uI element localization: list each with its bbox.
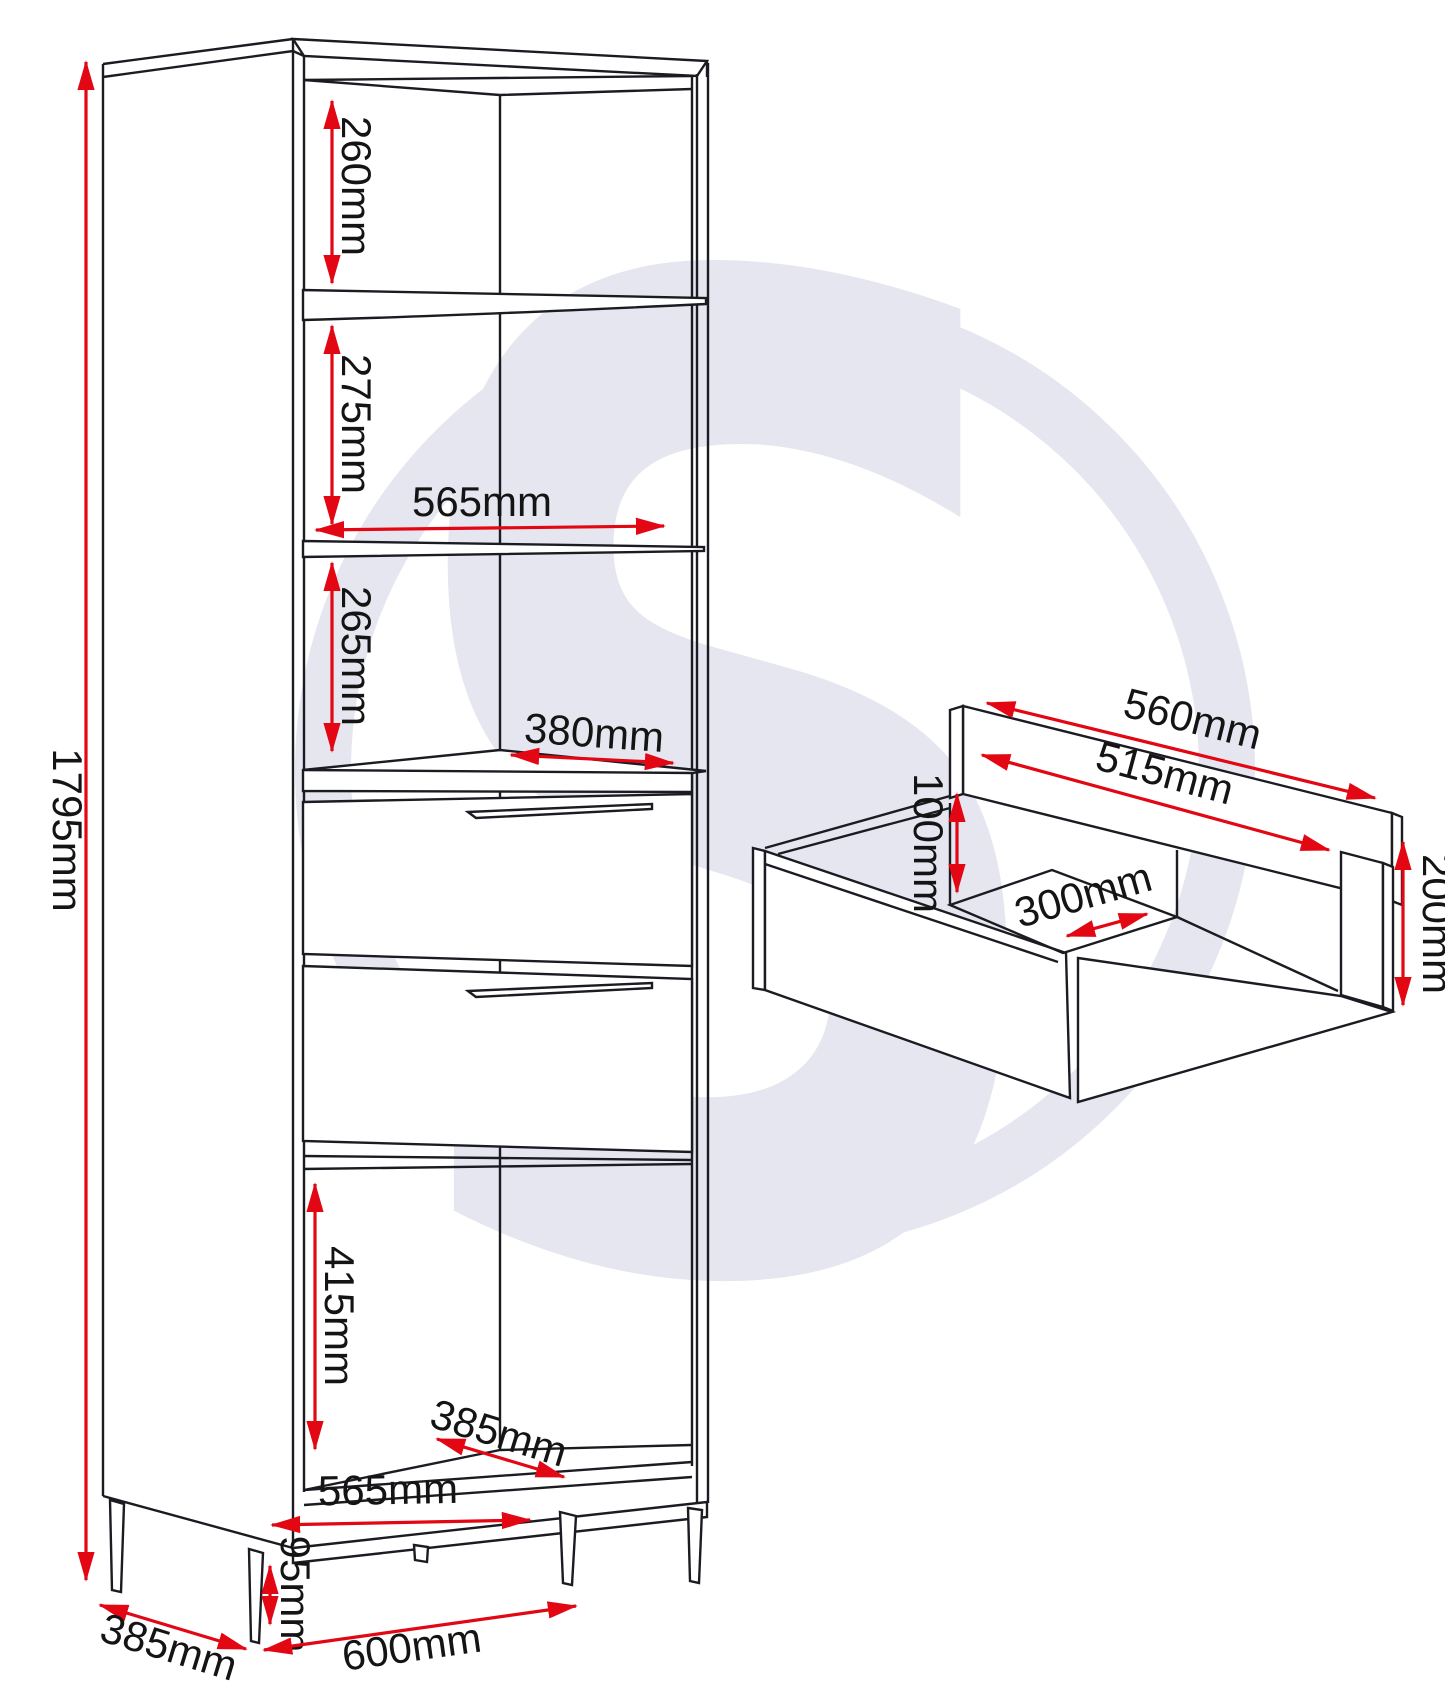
dim-third-section-height: 265mm — [332, 563, 380, 751]
dim-front-panel-height: 200mm — [1403, 842, 1445, 1005]
dim-overall-height: 1795mm — [44, 62, 91, 1580]
drawer-left-corner-post — [753, 848, 765, 990]
dim-drawer-interior-height: 100mm — [905, 773, 957, 913]
dimension-label: 100mm — [905, 773, 952, 913]
drawer-front-panel-cap — [1383, 863, 1393, 1011]
dimension-label: 385mm — [95, 1604, 243, 1690]
dimension-label: 380mm — [523, 704, 666, 761]
dimension-label: 1795mm — [44, 748, 91, 911]
dim-leg-height: 95mm — [270, 1536, 319, 1653]
dimension-label: 95mm — [272, 1536, 319, 1653]
dim-second-section-height: 275mm — [332, 326, 380, 524]
dimension-label: 600mm — [339, 1614, 484, 1680]
drawer-front-panel — [1341, 852, 1383, 1007]
cabinet-leg-front-left — [110, 1500, 124, 1592]
side-bottom-edge — [103, 1496, 293, 1548]
dimension-label: 565mm — [412, 478, 552, 525]
dimension-label: 260mm — [333, 116, 380, 256]
drawer-front-1 — [303, 794, 692, 966]
cabinet-top-edge — [103, 39, 293, 64]
dimension-label: 415mm — [316, 1246, 363, 1386]
dimension-label: 275mm — [333, 354, 380, 494]
dimension-label: 565mm — [318, 1465, 459, 1514]
furniture-dimension-diagram: S — [0, 0, 1445, 1705]
dimension-label: 265mm — [333, 586, 380, 726]
dimension-label: 200mm — [1414, 854, 1445, 994]
dim-overall-depth: 385mm — [95, 1604, 246, 1690]
dim-lower-section-height: 415mm — [315, 1184, 363, 1449]
cabinet-leg-back-left — [249, 1549, 263, 1643]
cabinet-top-edge-inner — [103, 51, 304, 77]
dim-top-section-height: 260mm — [332, 101, 380, 283]
cabinet-leg-back-right — [560, 1512, 576, 1585]
cabinet-leg-back-stub — [414, 1545, 428, 1562]
cabinet-leg-front-right — [688, 1508, 702, 1583]
